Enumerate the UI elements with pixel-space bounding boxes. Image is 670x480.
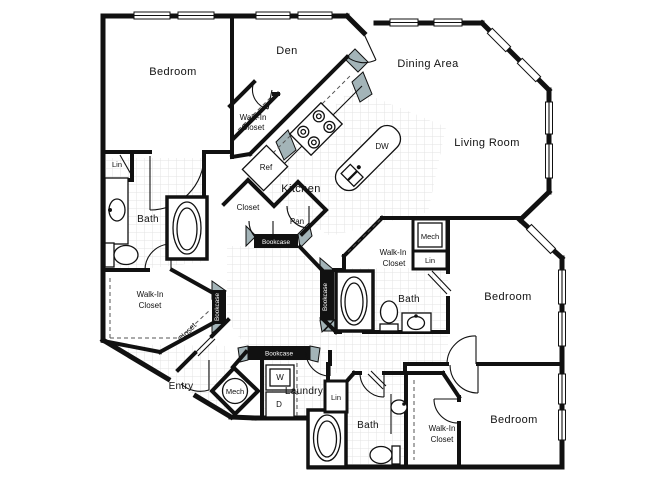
floor-plan-drawing: Bedroom Den Dining Area Living Room Walk… [0, 0, 670, 480]
label-mech-mid: Mech [421, 232, 439, 241]
label-mech-entry: Mech [226, 387, 244, 396]
sink [391, 400, 407, 414]
label-dining-area: Dining Area [397, 58, 459, 70]
label-closet-mid: Closet [237, 203, 260, 212]
label-bedroom-top-left: Bedroom [149, 66, 196, 78]
label-bath-mid: Bath [398, 294, 420, 305]
svg-text:Closet: Closet [139, 301, 162, 310]
toilet-bowl [370, 447, 392, 464]
label-entry: Entry [169, 381, 194, 392]
label-walkin-closet-left: Walk-In [137, 290, 164, 299]
label-bath-left: Bath [137, 214, 159, 225]
label-bookcase-laundry: Bookcase [265, 351, 294, 358]
label-bedroom-mid-right: Bedroom [484, 291, 531, 303]
label-walkin-closet-top: Walk-In [240, 113, 267, 122]
label-bookcase-kitchen: Bookcase [262, 239, 291, 246]
label-lin-left: Lin [112, 160, 122, 169]
label-dryer: D [276, 400, 282, 409]
label-pantry: Pan [290, 217, 304, 226]
label-bookcase-hall-left: Bookcase [214, 293, 221, 322]
label-dw: DW [375, 142, 389, 151]
toilet-tank [105, 243, 114, 267]
toilet-bowl [381, 301, 398, 323]
svg-text:Closet: Closet [242, 123, 265, 132]
label-den: Den [276, 45, 297, 57]
label-laundry: Laundry [285, 386, 323, 397]
label-living-room: Living Room [454, 137, 520, 149]
label-bookcase-hall-right: Bookcase [322, 283, 329, 312]
floor-plan: Bedroom Den Dining Area Living Room Walk… [0, 0, 670, 480]
label-ref: Ref [260, 163, 273, 172]
label-bath-bottom: Bath [357, 420, 379, 431]
label-kitchen: Kitchen [281, 183, 321, 195]
label-lin-bottom: Lin [331, 393, 341, 402]
sink [408, 317, 425, 330]
label-bedroom-bottom-right: Bedroom [490, 414, 537, 426]
toilet-bowl [114, 246, 138, 265]
toilet-tank [392, 446, 400, 464]
label-lin-mid: Lin [425, 256, 435, 265]
label-washer: W [276, 373, 284, 382]
toilet-tank [380, 324, 398, 331]
label-walkin-closet-mid: Walk-In [380, 248, 407, 257]
svg-text:Closet: Closet [431, 435, 454, 444]
label-walkin-closet-bottom: Walk-In [429, 424, 456, 433]
svg-text:Closet: Closet [383, 259, 406, 268]
